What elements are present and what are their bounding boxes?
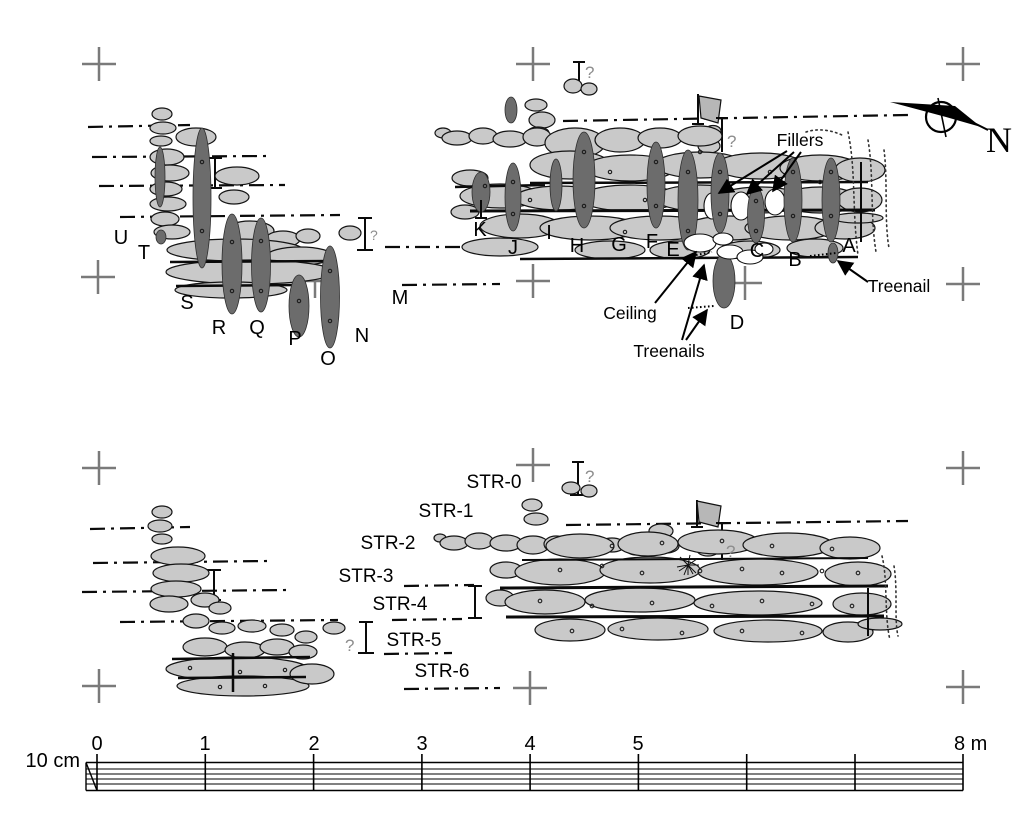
scale-end-label: 8 m: [954, 733, 987, 755]
scale-tick-4: 4: [524, 733, 535, 755]
frame-label-B: B: [788, 249, 801, 271]
site-plan-figure: N U T S R Q P O N M K J I H G F E D C B …: [0, 0, 1024, 838]
strata-label-STR-2: STR-2: [361, 533, 416, 554]
treenails-label: Treenails: [633, 341, 705, 361]
frame-label-H: H: [570, 235, 584, 257]
upper-right-timber-assembly: [435, 97, 889, 308]
question-mark: ?: [370, 227, 378, 243]
scale-bar: 10 cm 0 1 2 3 4 5 8 m: [26, 733, 988, 791]
scale-tick-5: 5: [632, 733, 643, 755]
question-mark: ?: [726, 542, 735, 561]
north-label: N: [986, 120, 1012, 160]
lower-right-planking-assembly: [434, 499, 902, 642]
frame-label-G: G: [611, 234, 627, 256]
scale-tick-1: 1: [199, 733, 210, 755]
scale-tick-3: 3: [416, 733, 427, 755]
question-mark: ?: [585, 467, 594, 486]
strata-label-STR-5: STR-5: [387, 630, 442, 651]
strata-label-STR-6: STR-6: [415, 661, 470, 682]
question-mark: ?: [585, 63, 594, 82]
strata-label-STR-0: STR-0: [467, 472, 522, 493]
frame-label-K: K: [473, 219, 487, 241]
sediment-stipple: [884, 150, 889, 248]
scale-side-label: 10 cm: [26, 750, 80, 772]
fillers-label: Fillers: [777, 130, 824, 150]
question-mark: ?: [727, 132, 736, 151]
lower-left-timber-cluster: [148, 506, 345, 696]
frame-label-J: J: [508, 237, 518, 259]
north-arrow: N: [890, 98, 1012, 160]
frame-label-T: T: [138, 242, 150, 264]
frame-label-I: I: [546, 222, 552, 244]
frame-label-P: P: [288, 328, 301, 350]
frame-label-U: U: [114, 227, 128, 249]
treenail-label: Treenail: [868, 276, 931, 296]
frame-label-F: F: [646, 231, 658, 253]
scale-tick-2: 2: [308, 733, 319, 755]
scale-tick-0: 0: [91, 733, 102, 755]
frame-label-C: C: [750, 240, 764, 262]
frame-label-D: D: [730, 312, 744, 334]
frame-label-N: N: [355, 325, 369, 347]
strata-label-STR-3: STR-3: [339, 566, 394, 587]
strata-label-STR-4: STR-4: [373, 594, 428, 615]
frame-label-O: O: [320, 348, 336, 370]
ceiling-label: Ceiling: [603, 303, 657, 323]
question-mark: ?: [345, 636, 354, 655]
figure-page: N U T S R Q P O N M K J I H G F E D C B …: [0, 0, 1024, 838]
frame-label-M: M: [392, 287, 409, 309]
strata-label-STR-1: STR-1: [419, 501, 474, 522]
frame-label-Q: Q: [249, 317, 265, 339]
frame-label-S: S: [180, 292, 193, 314]
frame-label-R: R: [212, 317, 226, 339]
frame-label-E: E: [666, 239, 679, 261]
frame-label-A: A: [842, 235, 856, 257]
